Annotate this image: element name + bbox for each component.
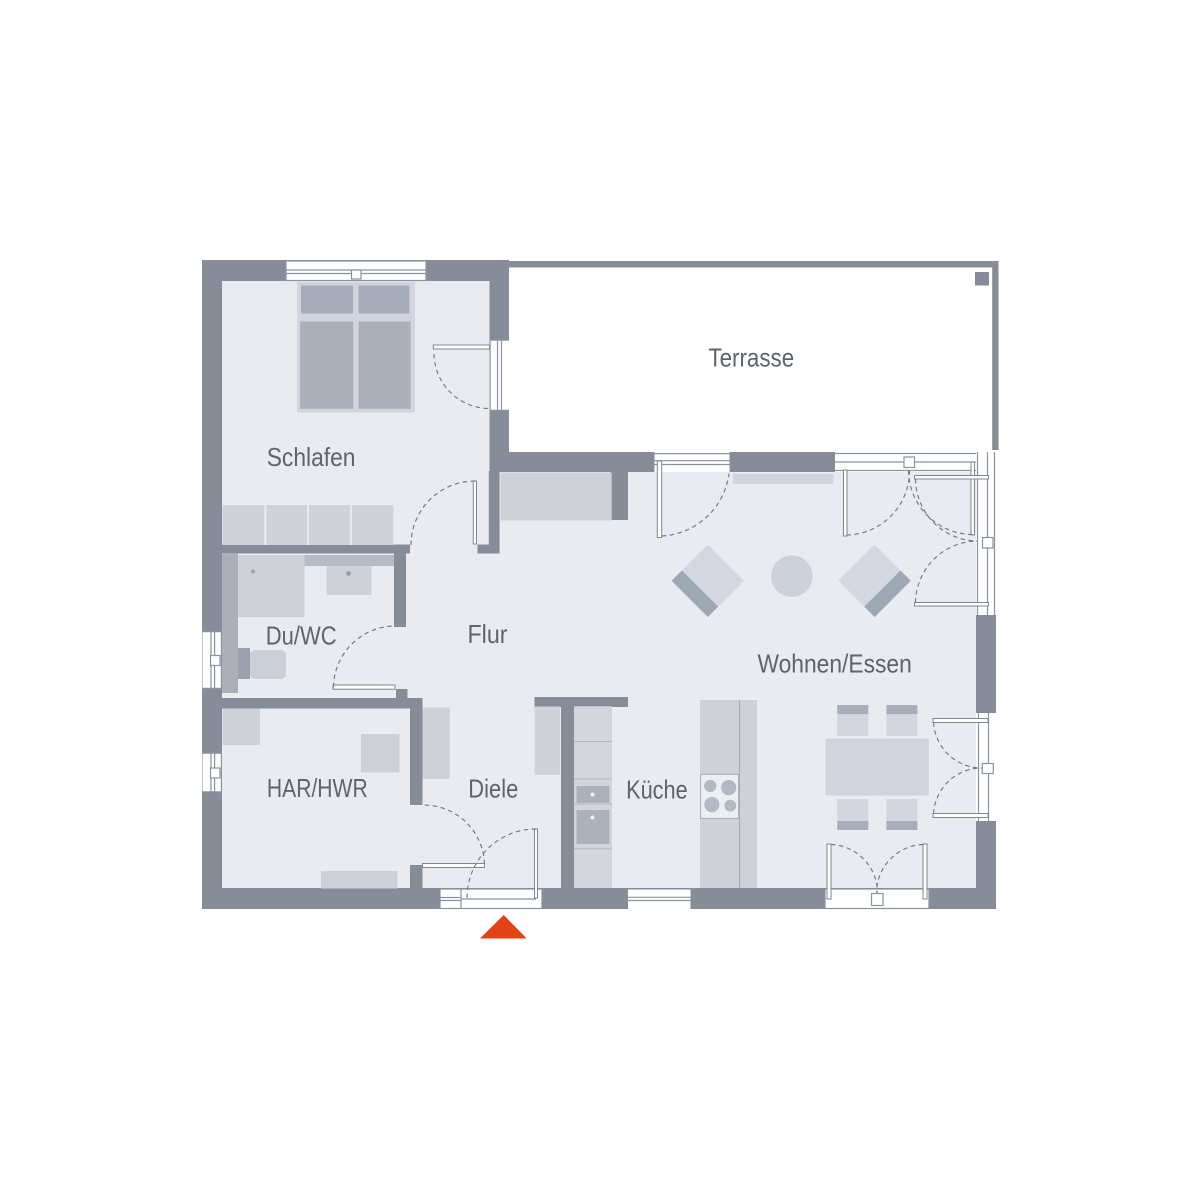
svg-text:Du/WC: Du/WC bbox=[266, 621, 337, 651]
svg-text:Schlafen: Schlafen bbox=[267, 442, 356, 472]
svg-text:HAR/HWR: HAR/HWR bbox=[267, 773, 368, 803]
svg-text:Wohnen/Essen: Wohnen/Essen bbox=[758, 649, 912, 679]
svg-text:Diele: Diele bbox=[468, 774, 518, 804]
svg-text:Küche: Küche bbox=[626, 774, 688, 804]
svg-text:Terrasse: Terrasse bbox=[708, 343, 794, 373]
svg-text:Flur: Flur bbox=[468, 619, 508, 649]
